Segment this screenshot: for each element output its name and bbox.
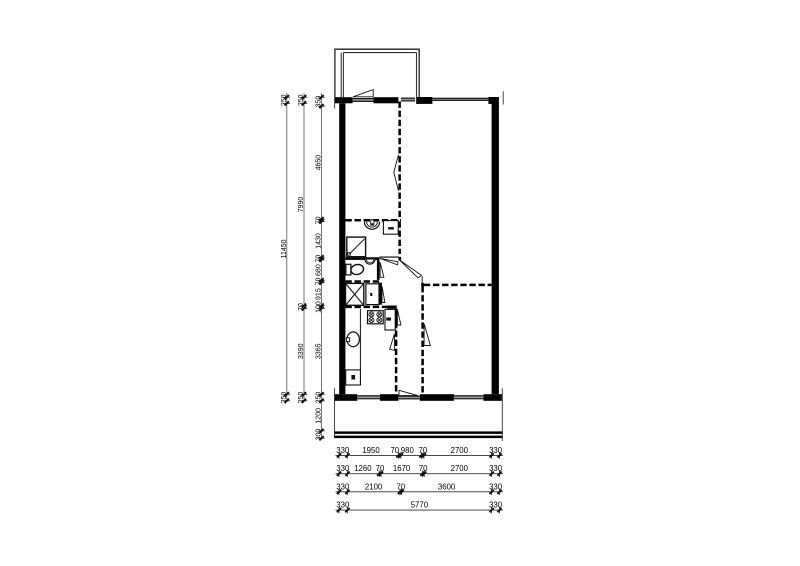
svg-text:100: 100: [316, 301, 323, 313]
svg-text:250: 250: [298, 392, 305, 404]
svg-text:250: 250: [298, 94, 305, 106]
svg-text:300: 300: [316, 429, 323, 441]
svg-text:330: 330: [489, 464, 503, 473]
svg-text:7990: 7990: [298, 197, 305, 213]
svg-text:70: 70: [316, 278, 323, 286]
svg-text:330: 330: [489, 446, 503, 455]
svg-text:330: 330: [489, 482, 503, 491]
svg-text:2100: 2100: [365, 482, 383, 491]
svg-text:70: 70: [298, 303, 305, 311]
svg-text:980: 980: [401, 446, 415, 455]
svg-text:2700: 2700: [451, 464, 469, 473]
svg-text:915: 915: [316, 288, 323, 300]
svg-text:250: 250: [281, 392, 288, 404]
svg-text:70: 70: [316, 216, 323, 224]
svg-text:3390: 3390: [298, 343, 305, 359]
svg-text:3365: 3365: [316, 343, 323, 359]
svg-text:330: 330: [489, 501, 503, 510]
svg-text:250: 250: [281, 94, 288, 106]
svg-text:350: 350: [316, 96, 323, 108]
svg-text:1950: 1950: [362, 446, 380, 455]
svg-text:330: 330: [336, 446, 350, 455]
svg-text:1670: 1670: [393, 464, 411, 473]
svg-text:4650: 4650: [316, 155, 323, 171]
svg-text:250: 250: [316, 392, 323, 404]
svg-text:330: 330: [336, 464, 350, 473]
svg-text:680: 680: [316, 264, 323, 276]
svg-text:70: 70: [390, 446, 399, 455]
svg-text:70: 70: [316, 255, 323, 263]
svg-text:70: 70: [396, 482, 405, 491]
svg-text:1260: 1260: [354, 464, 372, 473]
svg-text:11450: 11450: [281, 239, 288, 258]
svg-text:330: 330: [336, 501, 350, 510]
svg-text:1430: 1430: [316, 233, 323, 249]
svg-text:3600: 3600: [438, 482, 456, 491]
svg-text:70: 70: [419, 464, 428, 473]
svg-text:1200: 1200: [316, 408, 323, 424]
svg-text:330: 330: [336, 482, 350, 491]
svg-text:70: 70: [376, 464, 385, 473]
svg-text:2700: 2700: [451, 446, 469, 455]
svg-text:5770: 5770: [411, 501, 429, 510]
svg-text:70: 70: [419, 446, 428, 455]
